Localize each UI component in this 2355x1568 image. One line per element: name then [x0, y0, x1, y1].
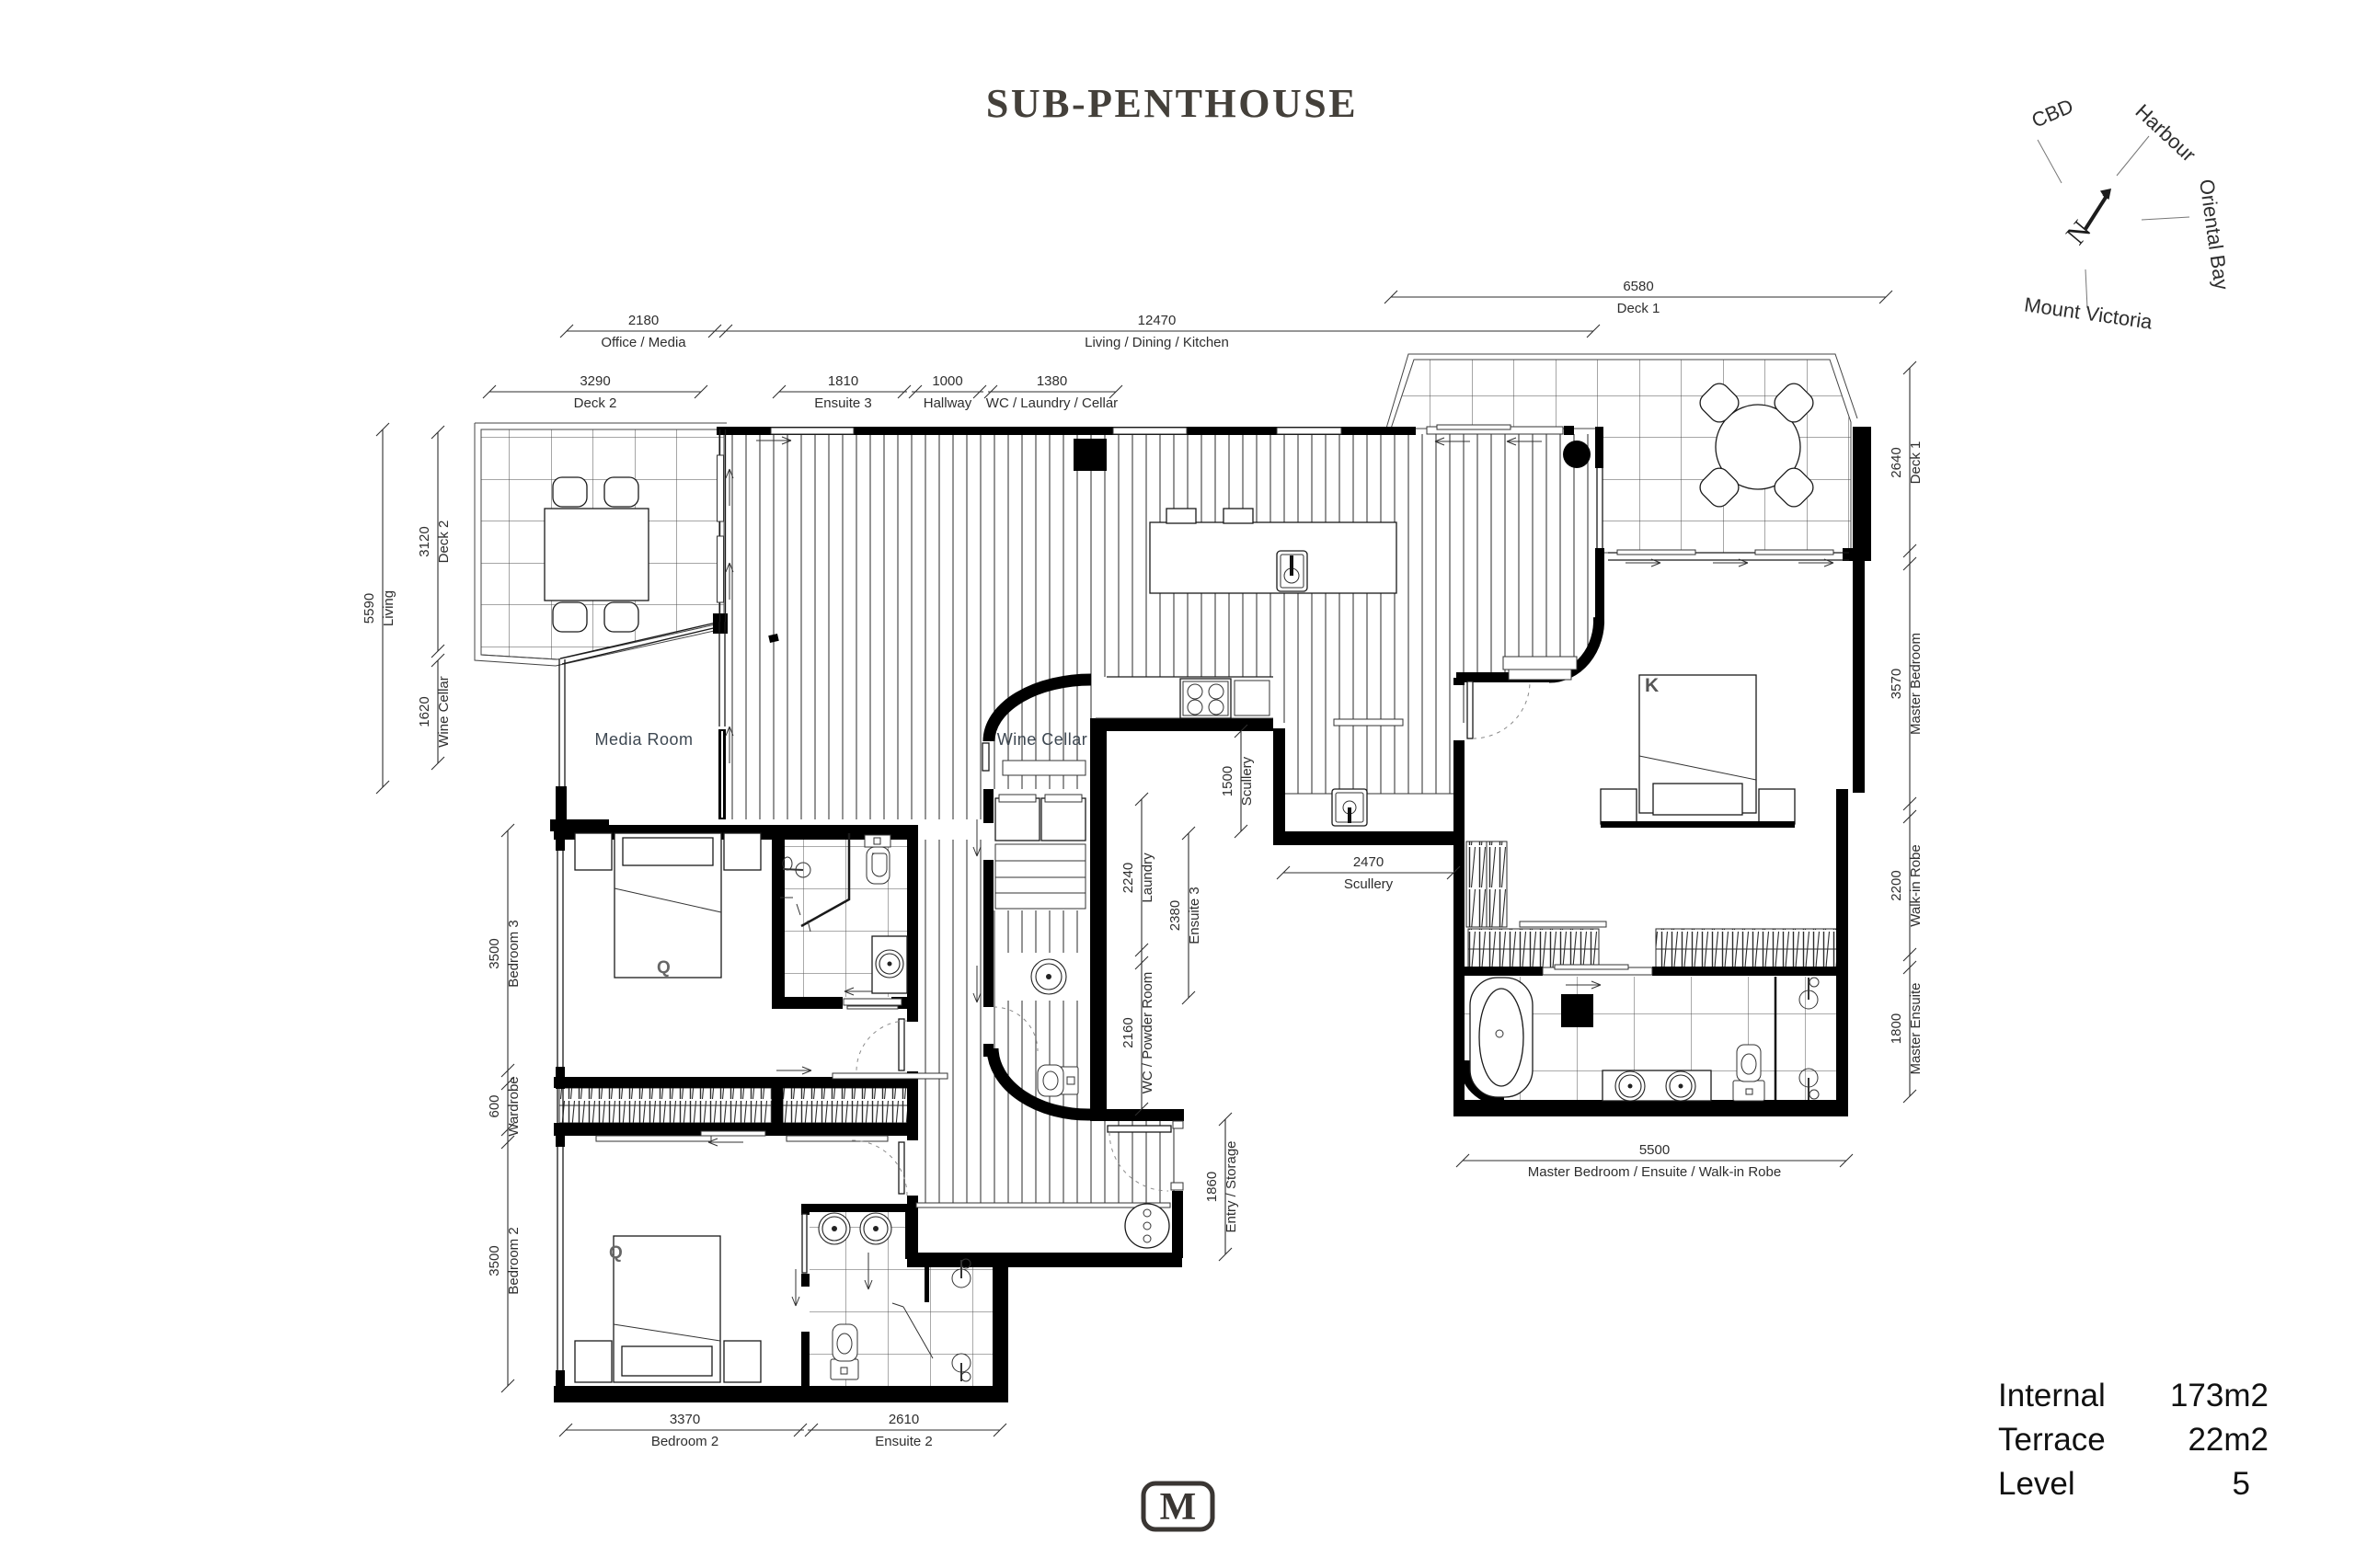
- svg-text:K: K: [1645, 675, 1659, 696]
- svg-text:1620: 1620: [417, 696, 432, 727]
- svg-text:2240: 2240: [1120, 863, 1136, 893]
- svg-text:Master Ensuite: Master Ensuite: [1908, 982, 1924, 1074]
- svg-text:Hallway: Hallway: [924, 395, 972, 411]
- svg-text:3500: 3500: [487, 1245, 502, 1276]
- svg-text:Terrace: Terrace: [1998, 1422, 2106, 1458]
- svg-text:Master Bedroom: Master Bedroom: [1908, 633, 1924, 735]
- svg-text:Q: Q: [609, 1243, 623, 1263]
- svg-text:SUB-PENTHOUSE: SUB-PENTHOUSE: [986, 81, 1358, 126]
- svg-text:2200: 2200: [1889, 870, 1904, 900]
- svg-text:Laundry: Laundry: [1140, 853, 1155, 903]
- svg-text:Level: Level: [1998, 1466, 2075, 1502]
- svg-text:M: M: [1160, 1486, 1197, 1528]
- svg-text:1500: 1500: [1220, 766, 1235, 796]
- svg-text:22m2: 22m2: [2188, 1422, 2269, 1458]
- svg-text:Ensuite 2: Ensuite 2: [875, 1434, 933, 1449]
- svg-text:Deck 1: Deck 1: [1908, 441, 1924, 485]
- svg-text:Bedroom 2: Bedroom 2: [506, 1227, 522, 1294]
- svg-text:2380: 2380: [1167, 900, 1183, 931]
- svg-text:3500: 3500: [487, 938, 502, 968]
- svg-text:3120: 3120: [417, 526, 432, 556]
- svg-text:Scullery: Scullery: [1344, 876, 1394, 892]
- svg-text:3290: 3290: [580, 373, 610, 389]
- svg-text:Deck 2: Deck 2: [574, 395, 617, 411]
- svg-text:1800: 1800: [1889, 1013, 1904, 1044]
- svg-text:3570: 3570: [1889, 669, 1904, 699]
- svg-text:2610: 2610: [889, 1412, 919, 1427]
- svg-text:1380: 1380: [1037, 373, 1067, 389]
- svg-text:Ensuite 3: Ensuite 3: [814, 395, 872, 411]
- svg-text:Ensuite 3: Ensuite 3: [1187, 887, 1202, 944]
- svg-text:6580: 6580: [1623, 279, 1653, 294]
- svg-text:1860: 1860: [1204, 1172, 1220, 1202]
- svg-text:600: 600: [487, 1094, 502, 1117]
- svg-text:5590: 5590: [362, 593, 377, 624]
- svg-text:12470: 12470: [1138, 313, 1177, 328]
- svg-text:Master Bedroom / Ensuite / Wal: Master Bedroom / Ensuite / Walk-in Robe: [1528, 1164, 1781, 1180]
- svg-text:1000: 1000: [932, 373, 962, 389]
- svg-text:Bedroom 2: Bedroom 2: [651, 1434, 718, 1449]
- svg-text:WC / Laundry / Cellar: WC / Laundry / Cellar: [986, 395, 1118, 411]
- svg-text:Entry / Storage: Entry / Storage: [1223, 1140, 1239, 1232]
- svg-text:WC / Powder Room: WC / Powder Room: [1140, 972, 1155, 1094]
- svg-text:1810: 1810: [828, 373, 858, 389]
- svg-text:Wine Cellar: Wine Cellar: [997, 730, 1088, 749]
- svg-text:Q: Q: [657, 958, 671, 978]
- svg-text:2640: 2640: [1889, 447, 1904, 477]
- svg-text:Living / Dining / Kitchen: Living / Dining / Kitchen: [1085, 335, 1229, 350]
- svg-text:Walk-in Robe: Walk-in Robe: [1908, 844, 1924, 926]
- svg-text:2160: 2160: [1120, 1017, 1136, 1047]
- svg-text:173m2: 173m2: [2170, 1378, 2269, 1413]
- svg-text:Living: Living: [381, 590, 396, 626]
- svg-text:Office / Media: Office / Media: [601, 335, 686, 350]
- svg-text:Wine Cellar: Wine Cellar: [436, 676, 452, 748]
- svg-text:Wardrobe: Wardrobe: [506, 1076, 522, 1136]
- svg-text:5: 5: [2233, 1466, 2250, 1502]
- svg-text:2180: 2180: [628, 313, 659, 328]
- svg-text:Scullery: Scullery: [1239, 756, 1255, 806]
- svg-text:3370: 3370: [670, 1412, 700, 1427]
- svg-text:Internal: Internal: [1998, 1378, 2106, 1413]
- svg-text:Deck 1: Deck 1: [1617, 301, 1660, 316]
- svg-text:Media Room: Media Room: [594, 730, 693, 749]
- svg-text:2470: 2470: [1353, 854, 1384, 870]
- svg-text:Deck 2: Deck 2: [436, 521, 452, 564]
- svg-text:5500: 5500: [1639, 1142, 1670, 1158]
- svg-text:Bedroom 3: Bedroom 3: [506, 920, 522, 987]
